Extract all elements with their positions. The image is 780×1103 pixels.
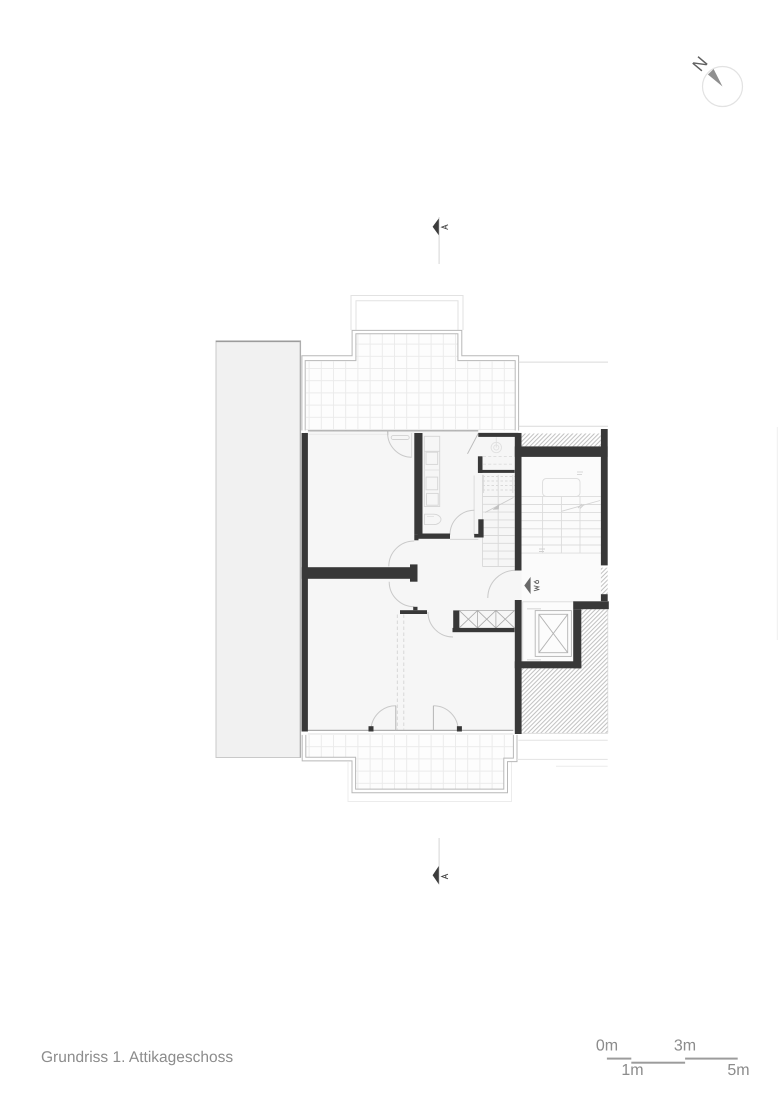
svg-text:1m: 1m — [621, 1062, 643, 1079]
svg-text:3m: 3m — [674, 1038, 696, 1055]
svg-text:Grundriss 1. Attikageschoss: Grundriss 1. Attikageschoss — [41, 1049, 233, 1066]
svg-text:5m: 5m — [727, 1062, 749, 1079]
svg-text:0m: 0m — [596, 1038, 618, 1055]
